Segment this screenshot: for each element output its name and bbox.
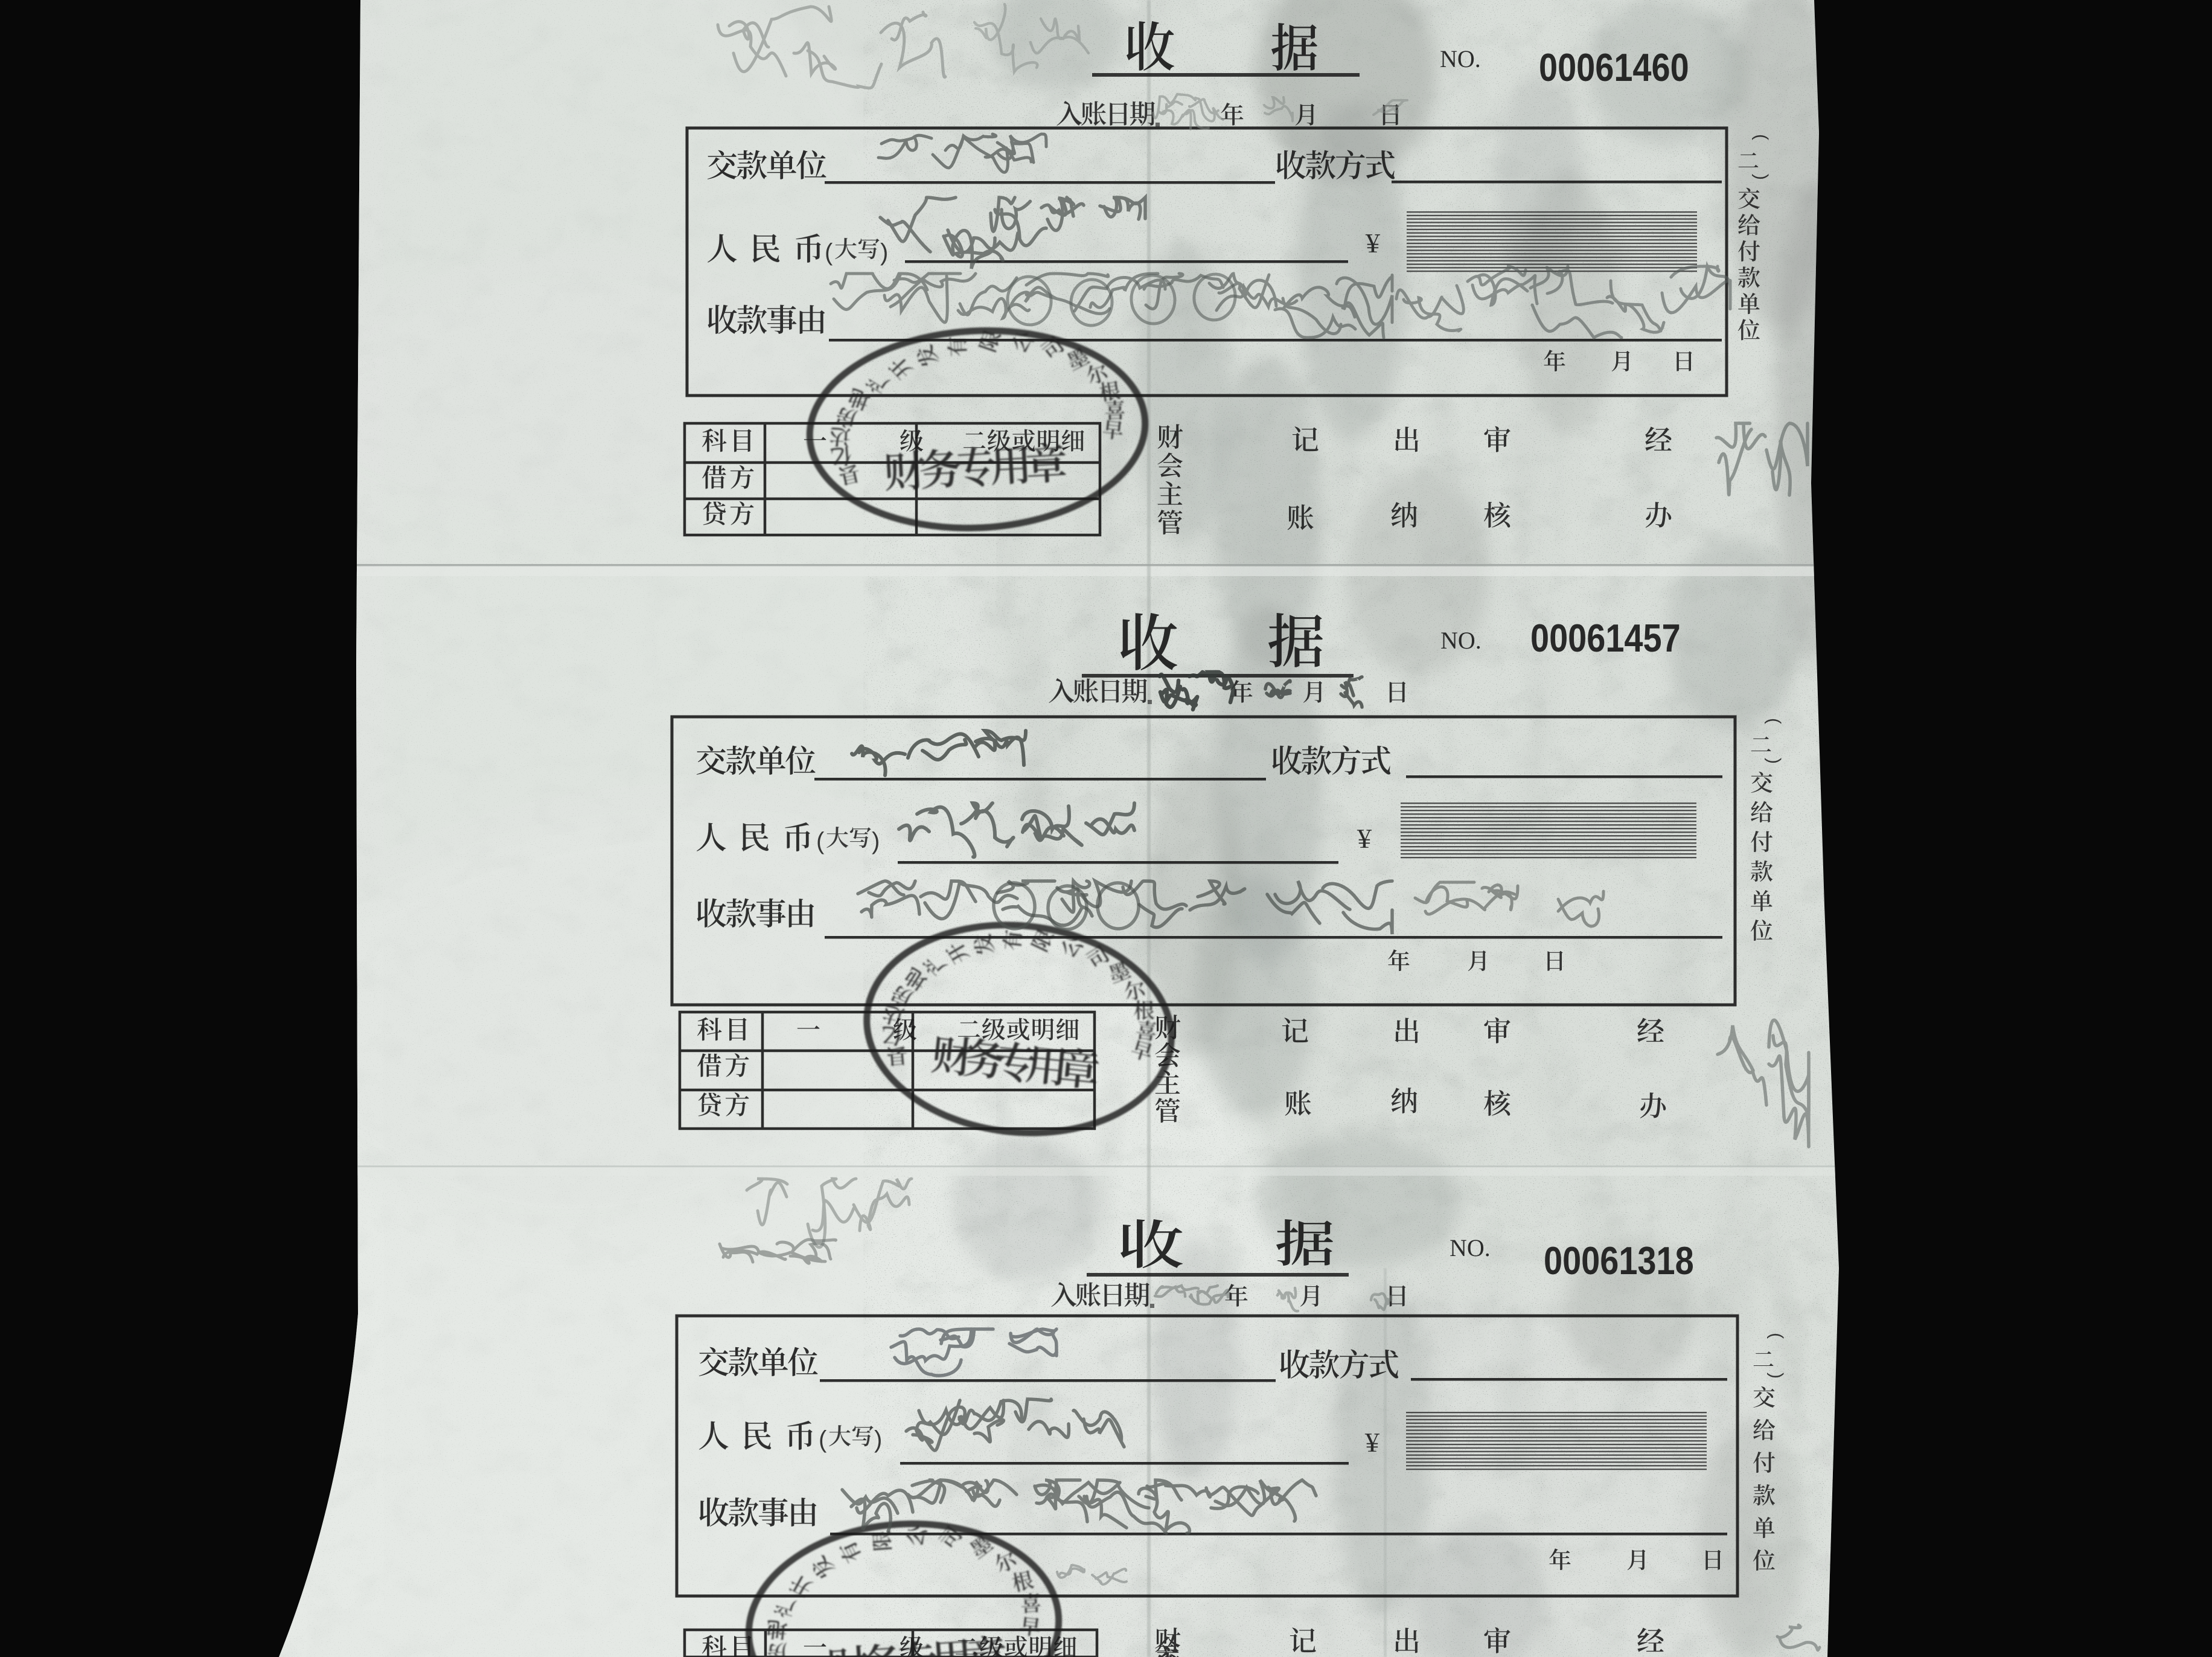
svg-text:NO.: NO. xyxy=(1450,1234,1491,1261)
svg-text:): ) xyxy=(1751,174,1771,180)
svg-text:): ) xyxy=(1764,758,1784,764)
svg-text:): ) xyxy=(872,828,880,854)
svg-text:): ) xyxy=(1766,1373,1786,1379)
svg-text:(: ( xyxy=(1764,718,1784,724)
svg-text:(: ( xyxy=(816,828,825,854)
svg-text:(: ( xyxy=(1766,1333,1786,1339)
svg-text:00061457: 00061457 xyxy=(1530,616,1681,660)
svg-text:(: ( xyxy=(819,1426,827,1453)
svg-text:NO.: NO. xyxy=(1440,627,1482,654)
svg-text:(: ( xyxy=(825,239,833,266)
svg-text:): ) xyxy=(880,239,888,266)
svg-text:00061318: 00061318 xyxy=(1544,1239,1694,1283)
svg-text:NO.: NO. xyxy=(1440,45,1481,72)
svg-text:(: ( xyxy=(1751,134,1771,140)
svg-text:): ) xyxy=(874,1426,882,1453)
svg-text:00061460: 00061460 xyxy=(1539,45,1689,89)
